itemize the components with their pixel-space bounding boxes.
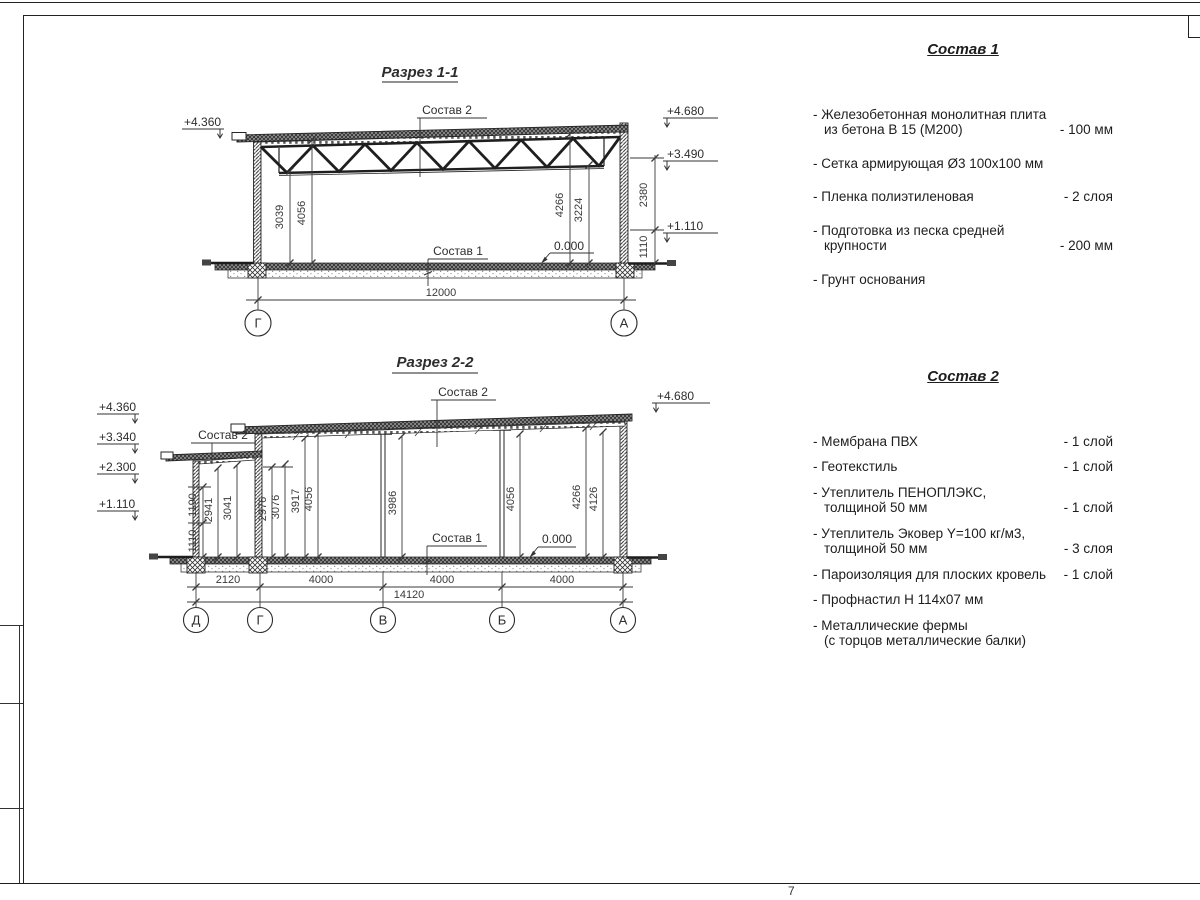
elevation-label: +4.680 [667, 104, 704, 118]
material-item: - Металлические фермы (с торцов металлич… [813, 618, 1113, 649]
elevation-mark-left [182, 129, 224, 138]
material-item: - Пленка полиэтиленовая - 2 слоя [813, 189, 1113, 205]
axis-label: Б [498, 613, 507, 628]
floor-slab [149, 554, 667, 574]
dim-label: 4056 [296, 201, 308, 225]
elevation-label: +4.680 [657, 389, 694, 403]
dim-label: 4000 [550, 574, 574, 586]
material-item: - Подготовка из песка средней крупности … [813, 223, 1113, 254]
sostav1-leader-label: Состав 1 [433, 244, 483, 258]
material-line1: - Утеплитель ПЕНОПЛЭКС, [813, 485, 1113, 501]
elevation-label: +1.110 [99, 497, 135, 511]
frame-corner-box [1188, 15, 1200, 38]
frame-bottom [0, 883, 1200, 884]
sheet-number: 7 [788, 884, 795, 898]
axis-markers [184, 608, 636, 633]
frame-margin-divider [0, 808, 23, 809]
frame-margin-divider [0, 703, 23, 704]
dim-label: 2380 [638, 183, 650, 207]
frame-inner-top [23, 15, 1200, 16]
material-item: - Утеплитель ПЕНОПЛЭКС, толщиной 50 мм -… [813, 485, 1113, 516]
axis-label: Г [256, 613, 263, 628]
zero-level-mark [530, 547, 577, 558]
material-line1: - Сетка армирующая Ø3 100х100 мм [813, 156, 1113, 172]
elevation-label: +3.340 [99, 430, 136, 444]
composition-title: Состав 2 [813, 369, 1113, 385]
drawing-sheet: 7 [0, 0, 1200, 900]
frame-margin-divider [0, 625, 23, 626]
section-title: Разрез 1-1 [381, 64, 458, 81]
dim-label: 2120 [216, 574, 240, 586]
material-line1: - Железобетонная монолитная плита [813, 107, 1113, 123]
material-value: - 1 слой [1064, 434, 1113, 450]
wall-axis-a [620, 416, 627, 557]
sostav2-leader-label: Состав 2 [422, 103, 472, 117]
frame-left-margin-line [19, 625, 20, 883]
material-item: - Профнастил Н 114х07 мм [813, 592, 1113, 608]
frame-outer-top [0, 2, 1200, 3]
annex-roof-slab [161, 451, 262, 464]
dim-label: 3039 [274, 205, 286, 229]
dim-label: 3986 [387, 491, 399, 515]
sostav1-leader-label: Состав 1 [432, 531, 482, 545]
elevation-label: +4.360 [99, 400, 136, 414]
dim-label: 4000 [309, 574, 333, 586]
material-line1: - Металлические фермы [813, 618, 1113, 634]
section-1-1-drawing: 3039 4056 4266 3224 2380 1110 12000 Г А [180, 55, 720, 355]
section-title: Разрез 2-2 [396, 354, 474, 371]
dim-label: 4126 [588, 487, 600, 511]
frame-inner-left [23, 15, 24, 883]
material-line1: - Профнастил Н 114х07 мм [813, 592, 1113, 608]
zero-level-label: 0.000 [554, 239, 584, 253]
sostav2-leader-label: Состав 2 [198, 428, 248, 442]
dim-total-label: 14120 [394, 589, 425, 601]
axis-label: В [379, 613, 388, 628]
dim-label: 4056 [505, 487, 517, 511]
wall-right [620, 123, 628, 263]
dim-label: 1190 [187, 493, 199, 517]
material-value: - 1 слой [1064, 500, 1113, 516]
material-value: - 3 слоя [1064, 541, 1113, 557]
composition-list-2: Состав 2 - Мембрана ПВХ - 1 слой - Геоте… [813, 369, 1113, 659]
material-line2: (с торцов металлические балки) [813, 633, 1113, 649]
dim-label: 2941 [203, 498, 215, 522]
material-value: - 2 слоя [1064, 189, 1113, 205]
material-line1: - Утеплитель Эковер Y=100 кг/м3, [813, 526, 1113, 542]
elevation-label: +3.490 [667, 147, 704, 161]
dim-label: 3917 [290, 489, 302, 513]
dim-label: 3224 [573, 198, 585, 222]
dim-total-label: 12000 [426, 287, 457, 299]
dim-label: 1110 [638, 236, 650, 259]
elevation-label: +1.110 [667, 219, 703, 233]
axis-markers [245, 310, 637, 336]
dim-label: 2976 [257, 497, 269, 521]
dim-label: 4000 [430, 574, 454, 586]
elevation-label: +2.300 [99, 460, 136, 474]
zero-level-mark [541, 253, 594, 264]
material-value: - 200 мм [1060, 238, 1113, 254]
material-item: - Грунт основания [813, 272, 1113, 288]
elevation-mark-right [652, 403, 710, 412]
material-item: - Пароизоляция для плоских кровель - 1 с… [813, 567, 1113, 583]
zero-level-label: 0.000 [542, 532, 572, 546]
dim-label: 4056 [303, 487, 315, 511]
wall-left [254, 142, 262, 263]
elevation-label: +4.360 [184, 115, 221, 129]
sostav2-leader-label: Состав 2 [438, 385, 488, 399]
material-value: - 1 слой [1064, 459, 1113, 475]
composition-list-1: Состав 1 - Железобетонная монолитная пли… [813, 42, 1113, 305]
material-item: - Железобетонная монолитная плита из бет… [813, 107, 1113, 138]
material-line1: - Грунт основания [813, 272, 1113, 288]
dim-label: 4266 [554, 193, 566, 217]
material-value: - 1 слой [1064, 567, 1113, 583]
axis-label: А [620, 316, 629, 331]
dim-label: 3076 [270, 495, 282, 519]
material-item: - Геотекстиль - 1 слой [813, 459, 1113, 475]
material-value: - 100 мм [1060, 122, 1113, 138]
dim-label: 1110 [187, 530, 199, 553]
dim-label: 3041 [222, 496, 234, 520]
material-item: - Мембрана ПВХ - 1 слой [813, 434, 1113, 450]
axis-label: Г [254, 316, 261, 331]
section-2-2-drawing: 2941 3041 2976 3076 3917 4056 3986 4056 … [95, 350, 725, 650]
floor-slab [202, 260, 676, 279]
material-line1: - Подготовка из песка средней [813, 223, 1113, 239]
dim-label: 4266 [571, 485, 583, 509]
main-roof-slab [231, 414, 632, 440]
axis-label: Д [192, 613, 201, 628]
material-item: - Утеплитель Эковер Y=100 кг/м3, толщино… [813, 526, 1113, 557]
material-item: - Сетка армирующая Ø3 100х100 мм [813, 156, 1113, 172]
composition-title: Состав 1 [813, 42, 1113, 58]
axis-label: А [619, 613, 628, 628]
